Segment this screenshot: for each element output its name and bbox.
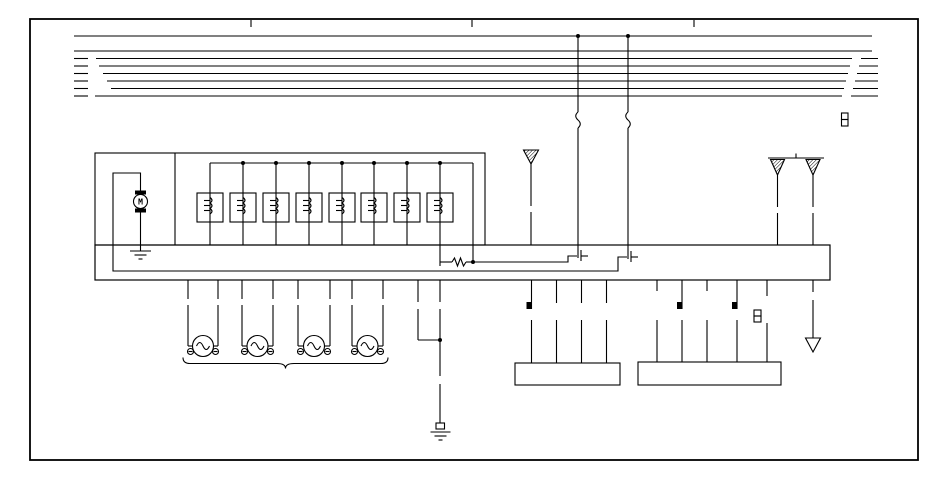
- connector-block-b: [638, 362, 781, 385]
- group-brace: [183, 358, 388, 369]
- connector-symbol: [754, 316, 761, 322]
- ground-symbol-left: [130, 251, 151, 259]
- antenna-bridge: [768, 154, 824, 159]
- ground-branch-wire: [418, 280, 440, 340]
- resistor-terminal: [440, 258, 452, 266]
- page-arrow: [732, 302, 737, 309]
- coil-sine-4: [361, 343, 374, 350]
- injector-wires-7: [401, 163, 407, 245]
- coil-wires-1: [188, 280, 218, 346]
- coil-sine-1: [197, 343, 210, 350]
- injector-wires-5: [336, 163, 342, 245]
- wiring-diagram-canvas: M: [0, 0, 950, 475]
- injector-wires-8: [434, 163, 440, 258]
- motor-brush-top: [135, 191, 146, 195]
- injector-wires-2: [237, 163, 243, 245]
- injector-wires-4: [303, 163, 309, 245]
- connector-symbol: [842, 120, 849, 127]
- page-border: [30, 19, 918, 460]
- wire-splice-curl: [626, 112, 631, 128]
- shield-triangle: [771, 160, 785, 176]
- coil-wires-4: [352, 280, 383, 346]
- connector-symbol: [842, 113, 849, 120]
- shield-ground-triangle: [806, 338, 821, 352]
- connector-symbol: [754, 310, 761, 316]
- coil-wires-3: [298, 280, 330, 346]
- coil-wires-2: [242, 280, 273, 346]
- junction-dot: [438, 338, 442, 342]
- motor-brush-bottom: [135, 209, 146, 213]
- ground-connector: [436, 423, 445, 429]
- coil-sine-3: [308, 343, 321, 350]
- diagram-page: M: [0, 0, 950, 475]
- ground-symbol-center: [431, 432, 451, 440]
- border-section-ticks: [251, 20, 694, 27]
- coil-sine-2: [251, 343, 264, 350]
- resistor: [452, 258, 466, 266]
- shield-triangle: [806, 160, 820, 176]
- wire-splice-curl: [576, 112, 581, 128]
- page-arrow: [677, 302, 682, 309]
- injector-wires-1: [204, 163, 210, 245]
- motor-label: M: [138, 198, 143, 207]
- driver-wire: [473, 256, 577, 262]
- terminal-pin: [581, 250, 588, 261]
- injector-wires-3: [270, 163, 276, 245]
- terminal-pin: [631, 251, 638, 262]
- page-arrow: [527, 302, 532, 309]
- connector-block-a: [515, 363, 620, 385]
- shield-triangle: [524, 150, 539, 164]
- injector-wires-6: [368, 163, 374, 245]
